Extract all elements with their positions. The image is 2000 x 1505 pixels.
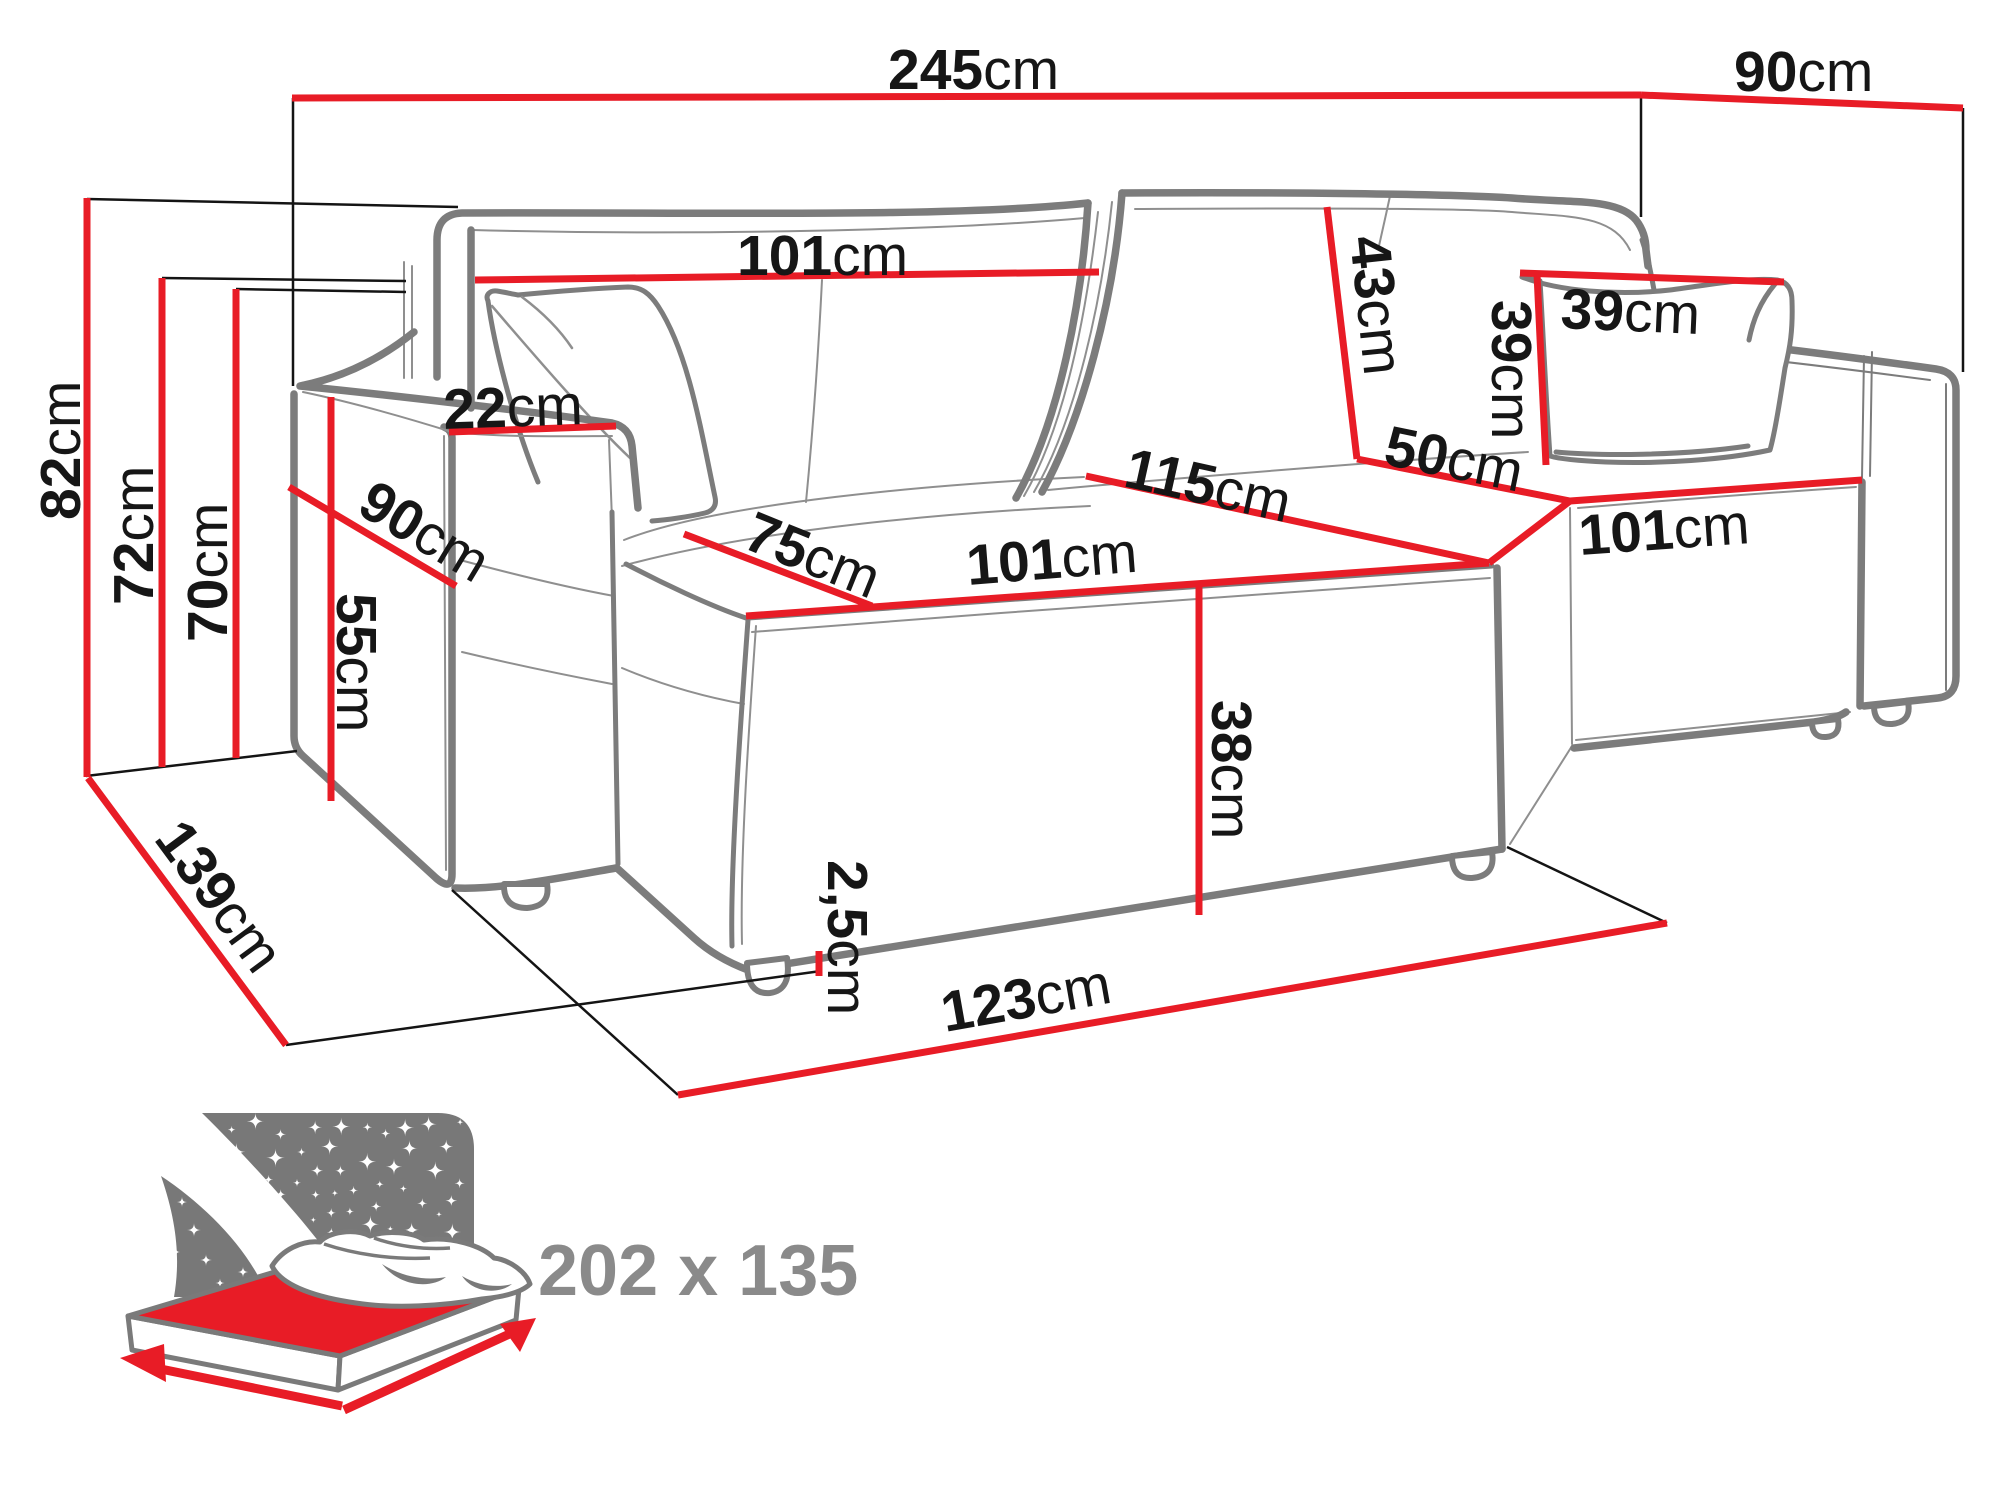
svg-text:101cm: 101cm — [964, 521, 1140, 598]
svg-text:70cm: 70cm — [176, 503, 240, 642]
svg-text:202 x 135: 202 x 135 — [538, 1231, 858, 1311]
svg-text:39cm: 39cm — [1479, 300, 1543, 439]
svg-text:39cm: 39cm — [1559, 277, 1701, 347]
svg-text:101cm: 101cm — [1576, 492, 1751, 568]
svg-text:2,5cm: 2,5cm — [815, 860, 879, 1015]
svg-text:245cm: 245cm — [888, 38, 1059, 102]
svg-text:82cm: 82cm — [29, 381, 93, 520]
svg-text:90cm: 90cm — [1734, 40, 1873, 104]
svg-text:72cm: 72cm — [102, 466, 166, 605]
svg-text:22cm: 22cm — [442, 373, 584, 442]
svg-text:55cm: 55cm — [324, 593, 388, 732]
svg-text:101cm: 101cm — [737, 224, 908, 288]
svg-text:38cm: 38cm — [1199, 700, 1263, 839]
